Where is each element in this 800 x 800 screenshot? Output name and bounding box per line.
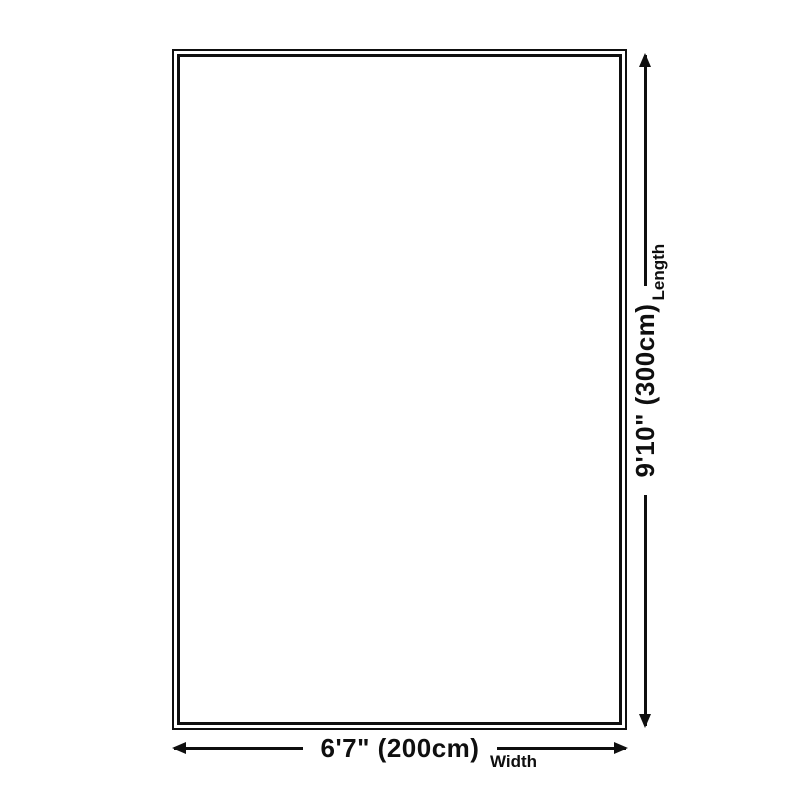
arrow-left-icon (172, 742, 186, 754)
arrow-up-icon (639, 53, 651, 67)
dimension-diagram: 6'7" (200cm) Width 9'10" (300cm) Length (0, 0, 800, 800)
product-outline-inner (177, 54, 622, 725)
length-dimension: 9'10" (300cm) Length (632, 53, 659, 728)
product-outline (172, 49, 627, 730)
arrow-right-icon (614, 742, 628, 754)
width-label: Width (490, 752, 537, 772)
width-dimension: 6'7" (200cm) Width (172, 735, 628, 762)
length-label: Length (649, 244, 669, 301)
arrow-down-icon (639, 714, 651, 728)
length-value: 9'10" (300cm) (632, 286, 659, 496)
width-value: 6'7" (200cm) (303, 735, 498, 762)
